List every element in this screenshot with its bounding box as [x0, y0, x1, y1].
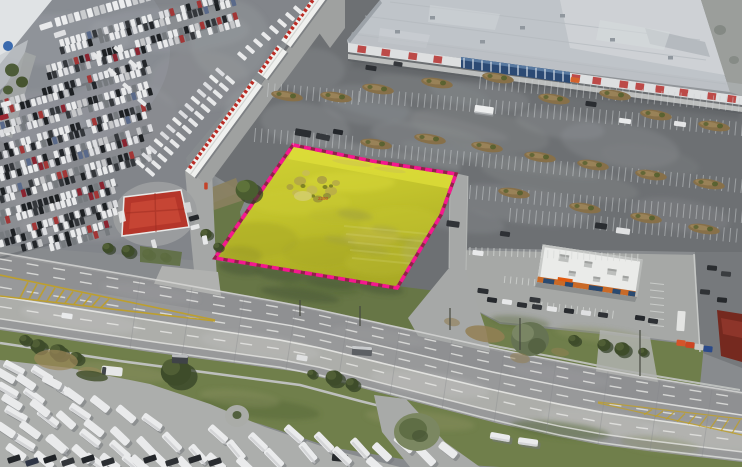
- svg-text:2280: 2280: [318, 196, 329, 201]
